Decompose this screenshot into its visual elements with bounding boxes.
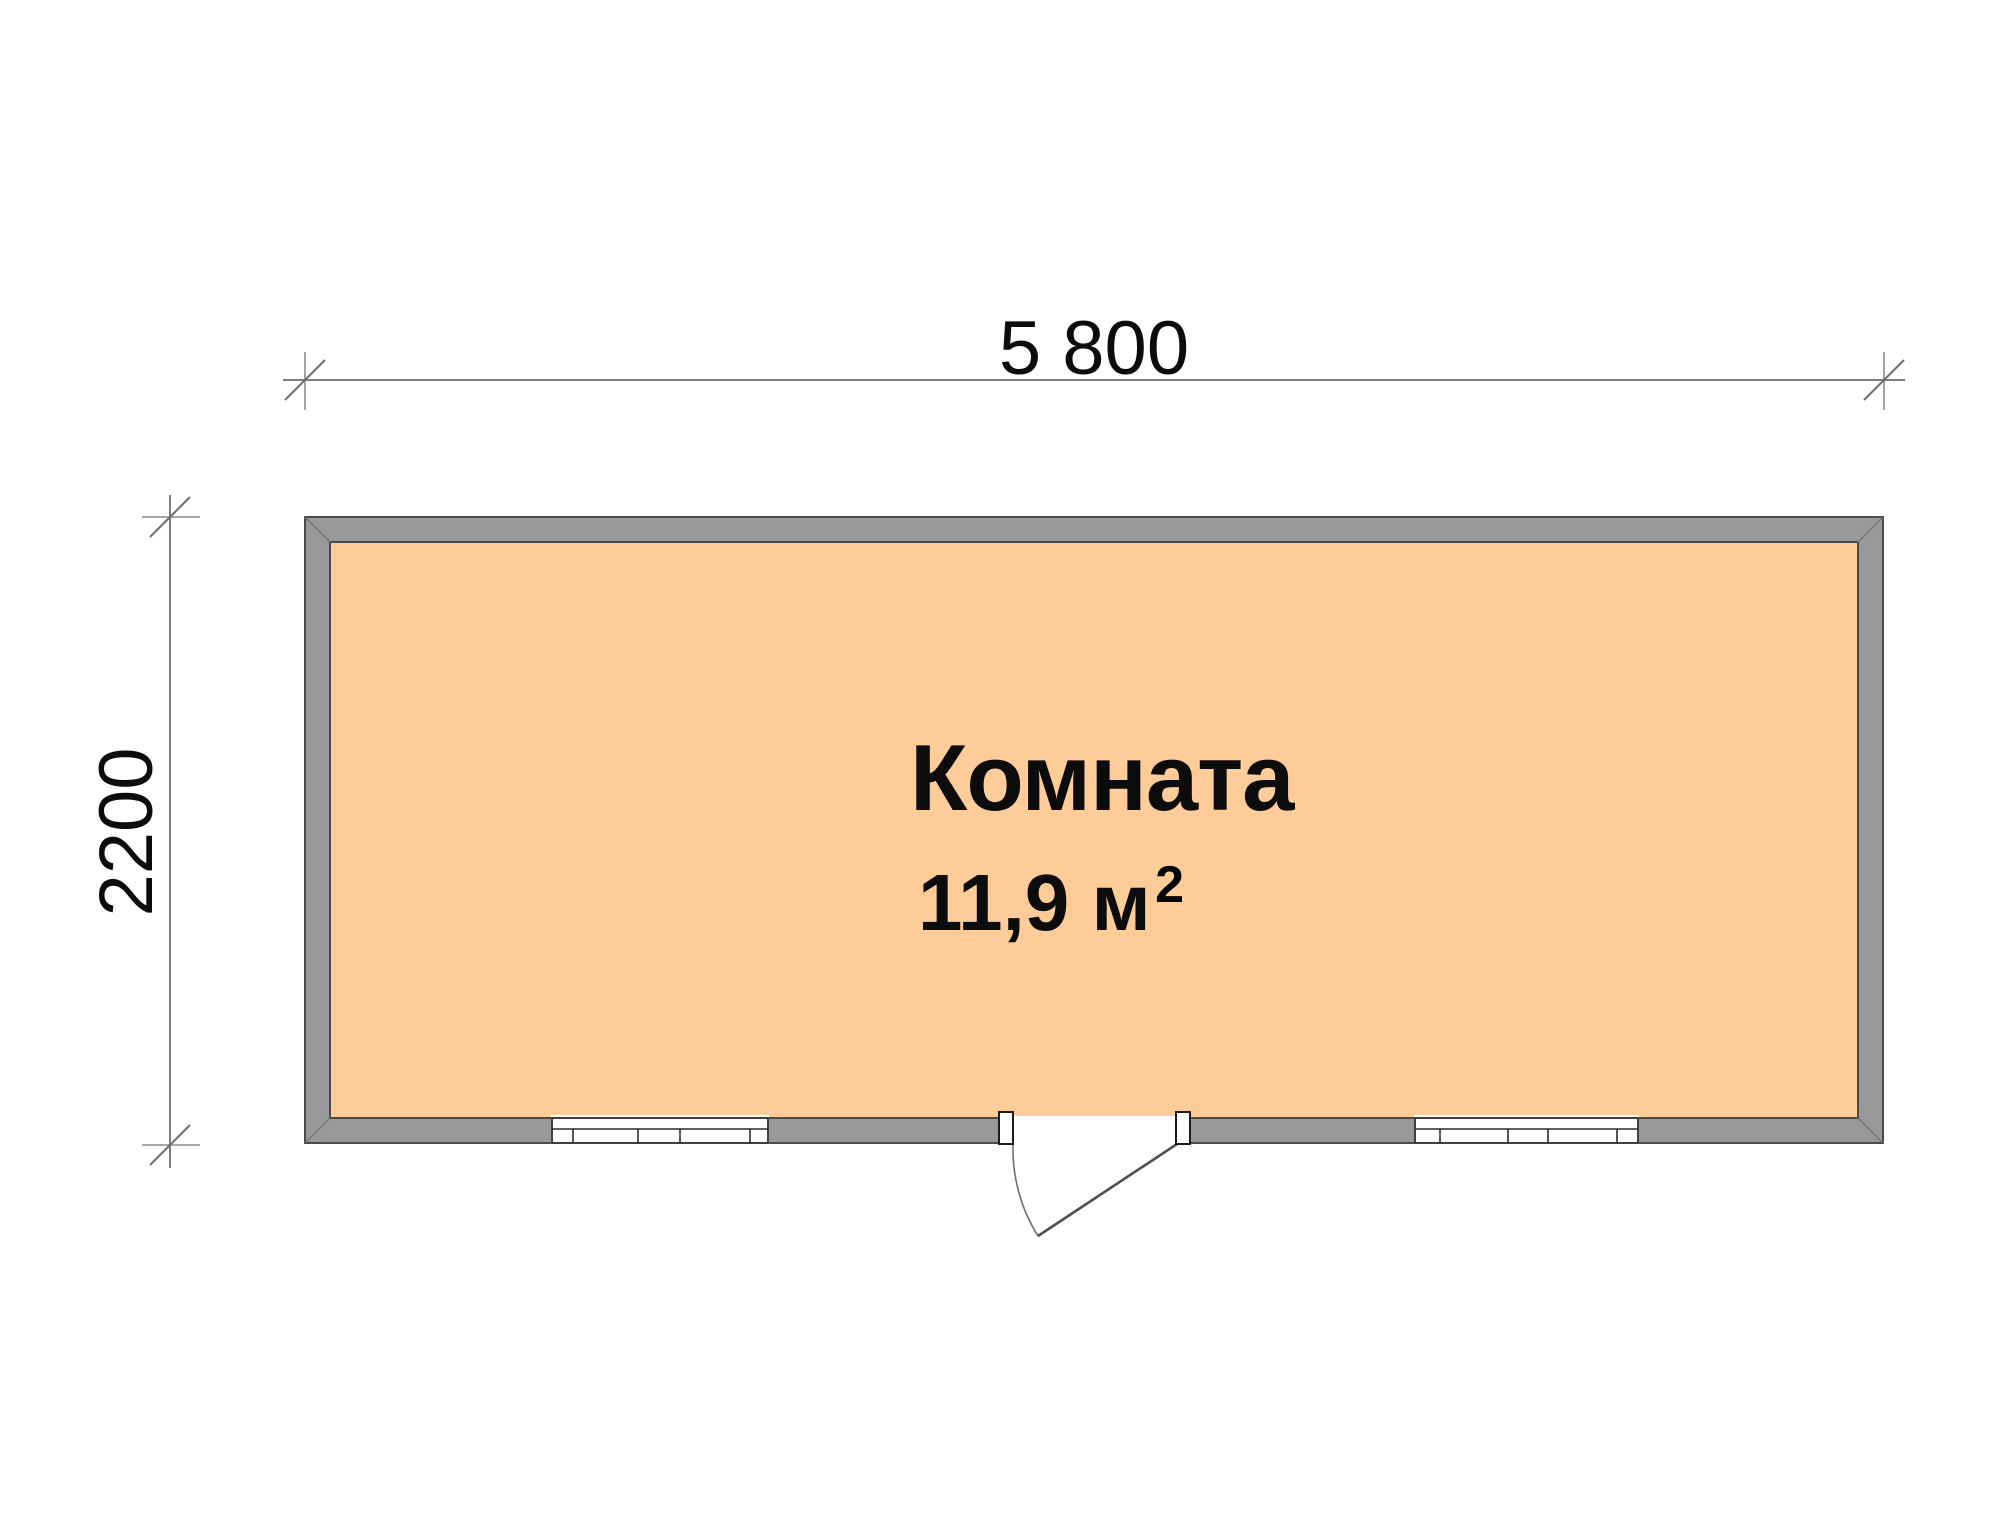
floor-plan-canvas: 5 800 2200: [0, 0, 2000, 1538]
window-left-frame: [552, 1118, 768, 1143]
dimension-height: 2200: [84, 495, 200, 1168]
room-area-superscript: 2: [1155, 856, 1184, 914]
dimension-width-label: 5 800: [999, 306, 1189, 391]
door-jamb-left: [999, 1112, 1013, 1144]
window-left: [551, 1115, 769, 1146]
room: Комната 11,9 м 2: [305, 517, 1883, 1236]
dimension-height-label: 2200: [84, 747, 169, 916]
door-swing-arc: [1013, 1144, 1038, 1236]
floor-plan-page: 5 800 2200: [0, 0, 2000, 1538]
room-area-value: 11,9 м: [918, 858, 1151, 947]
door-leaf: [1038, 1144, 1177, 1236]
door-jamb-right: [1176, 1112, 1190, 1144]
room-area-label: 11,9 м 2: [918, 856, 1184, 947]
door: [999, 1112, 1190, 1236]
window-right: [1414, 1115, 1639, 1146]
door-opening: [1012, 1116, 1177, 1147]
dimension-width: 5 800: [283, 306, 1905, 410]
room-name-label: Комната: [910, 725, 1295, 830]
room-floor: [328, 540, 1860, 1120]
window-right-frame: [1415, 1118, 1638, 1143]
